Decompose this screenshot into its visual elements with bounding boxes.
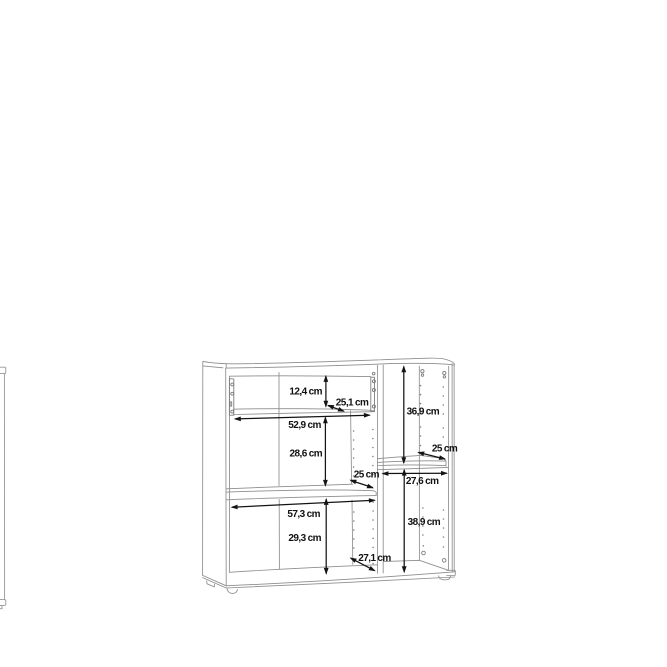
svg-text:29,3 cm: 29,3 cm: [288, 533, 321, 544]
svg-text:27,6 cm: 27,6 cm: [406, 476, 439, 487]
svg-text:57,3 cm: 57,3 cm: [287, 509, 320, 520]
svg-text:25,1 cm: 25,1 cm: [336, 398, 369, 409]
svg-text:25 cm: 25 cm: [354, 470, 380, 481]
svg-text:52,9 cm: 52,9 cm: [288, 420, 321, 431]
svg-text:25 cm: 25 cm: [432, 444, 458, 455]
svg-text:36,9 cm: 36,9 cm: [407, 406, 440, 417]
svg-text:12,4 cm: 12,4 cm: [289, 386, 322, 397]
svg-text:38,9 cm: 38,9 cm: [408, 517, 441, 528]
svg-text:28,6 cm: 28,6 cm: [290, 449, 323, 460]
svg-text:27,1 cm: 27,1 cm: [358, 553, 391, 564]
